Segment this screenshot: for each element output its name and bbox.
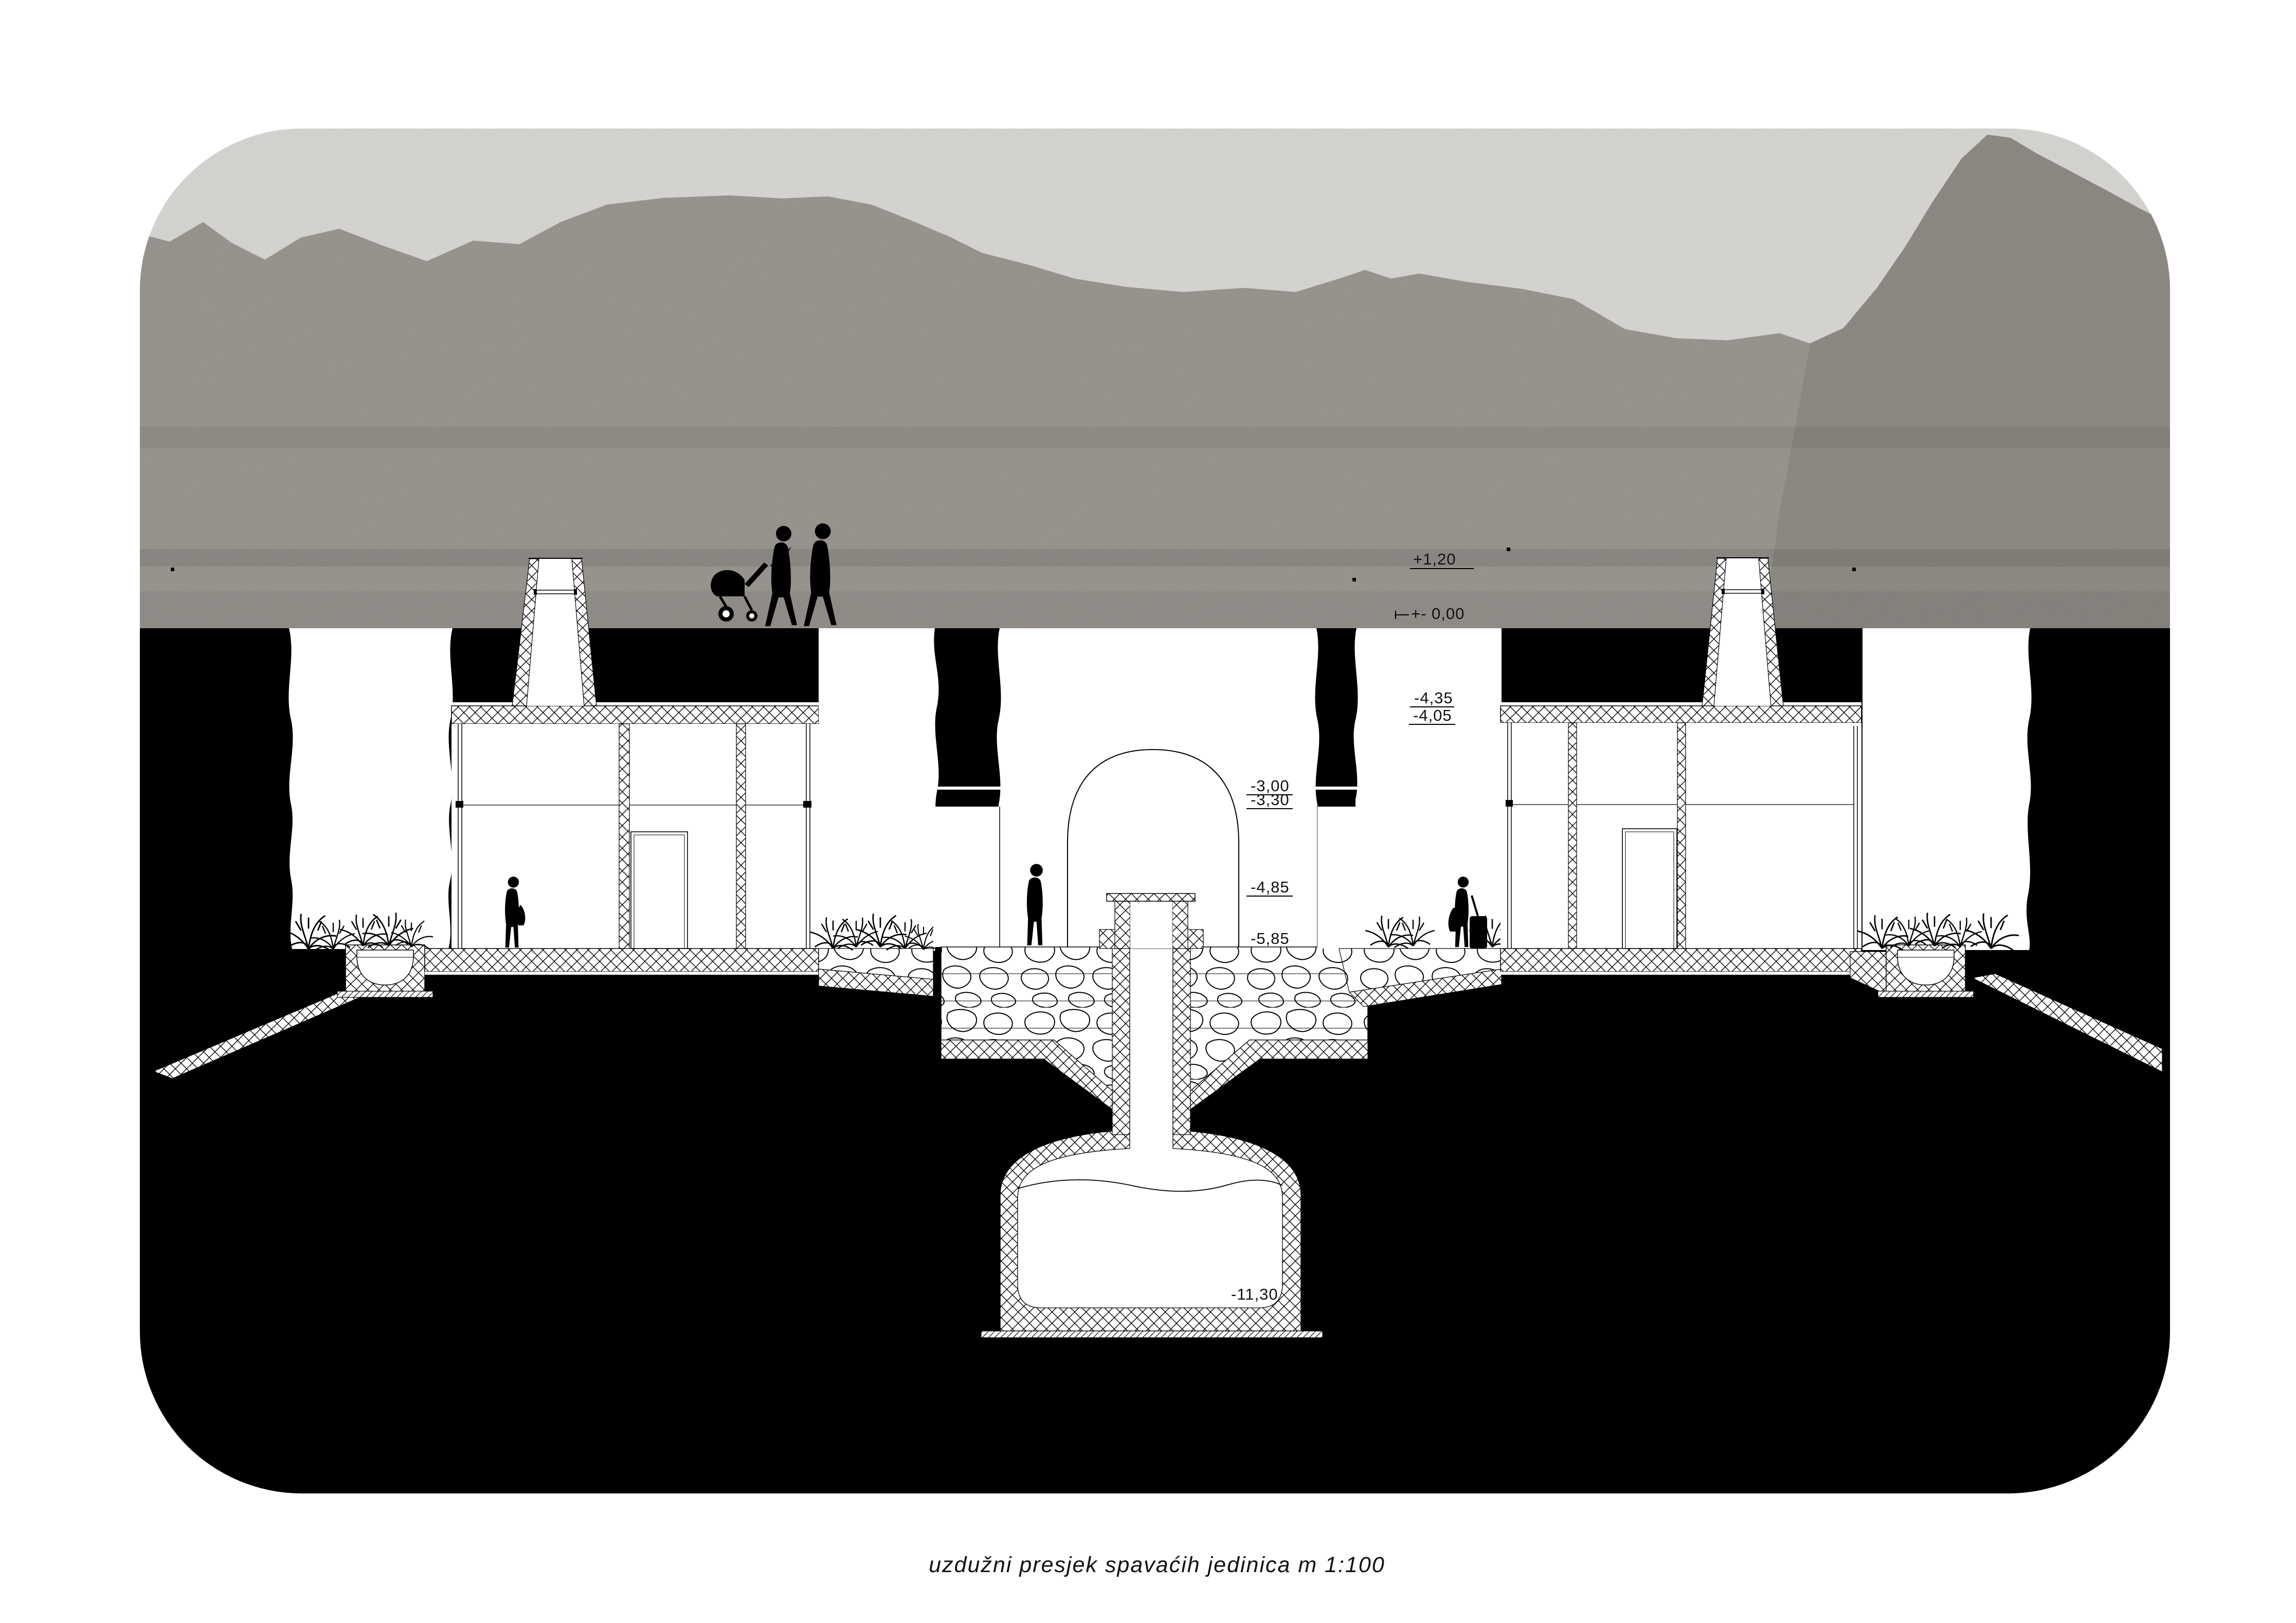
cistern-base	[981, 1331, 1323, 1338]
right-basin-plinth	[1878, 991, 1974, 997]
slab-line-left-trench	[933, 787, 1004, 790]
left-inner-wall-2	[736, 724, 746, 949]
page: { "drawing": { "caption": "uzdužni presj…	[0, 0, 2296, 1623]
level-label-m1130: -11,30	[1231, 1285, 1278, 1303]
right-door	[1622, 829, 1677, 949]
middle-courtyard	[810, 628, 944, 996]
photo-grain	[140, 129, 2170, 630]
luggage	[1470, 916, 1487, 949]
level-label-plus120: +1,20	[1413, 550, 1456, 568]
right-ceiling-slab	[1500, 706, 1861, 723]
photo-backdrop	[140, 129, 2170, 630]
well-shaft-wall-right	[1173, 949, 1190, 1135]
level-label-m485: -4,85	[1251, 878, 1290, 896]
level-label-m330: -3,30	[1251, 791, 1290, 809]
level-label-m405: -4,05	[1413, 706, 1452, 724]
left-door	[631, 832, 688, 949]
well-shaft-wall-left	[1112, 949, 1130, 1135]
left-basin-plinth	[337, 991, 433, 997]
right-inner-wall-2	[1677, 723, 1686, 949]
well-head	[1099, 893, 1203, 949]
level-label-zero: +- 0,00	[1411, 605, 1465, 623]
slab-line-right-trench	[1314, 787, 1359, 790]
right-inner-wall-1	[1568, 723, 1577, 949]
left-ceiling-slab	[451, 706, 819, 724]
section-drawing: -11,30	[0, 0, 2296, 1623]
level-label-m585: -5,85	[1251, 929, 1290, 947]
level-label-m435: -4,35	[1414, 689, 1453, 707]
left-inner-wall-1	[619, 724, 629, 949]
left-floor-slab	[425, 949, 819, 972]
right-floor-slab	[1500, 949, 1861, 972]
drawing-caption: uzdužni presjek spavaćih jedinica m 1:10…	[929, 1553, 1385, 1577]
